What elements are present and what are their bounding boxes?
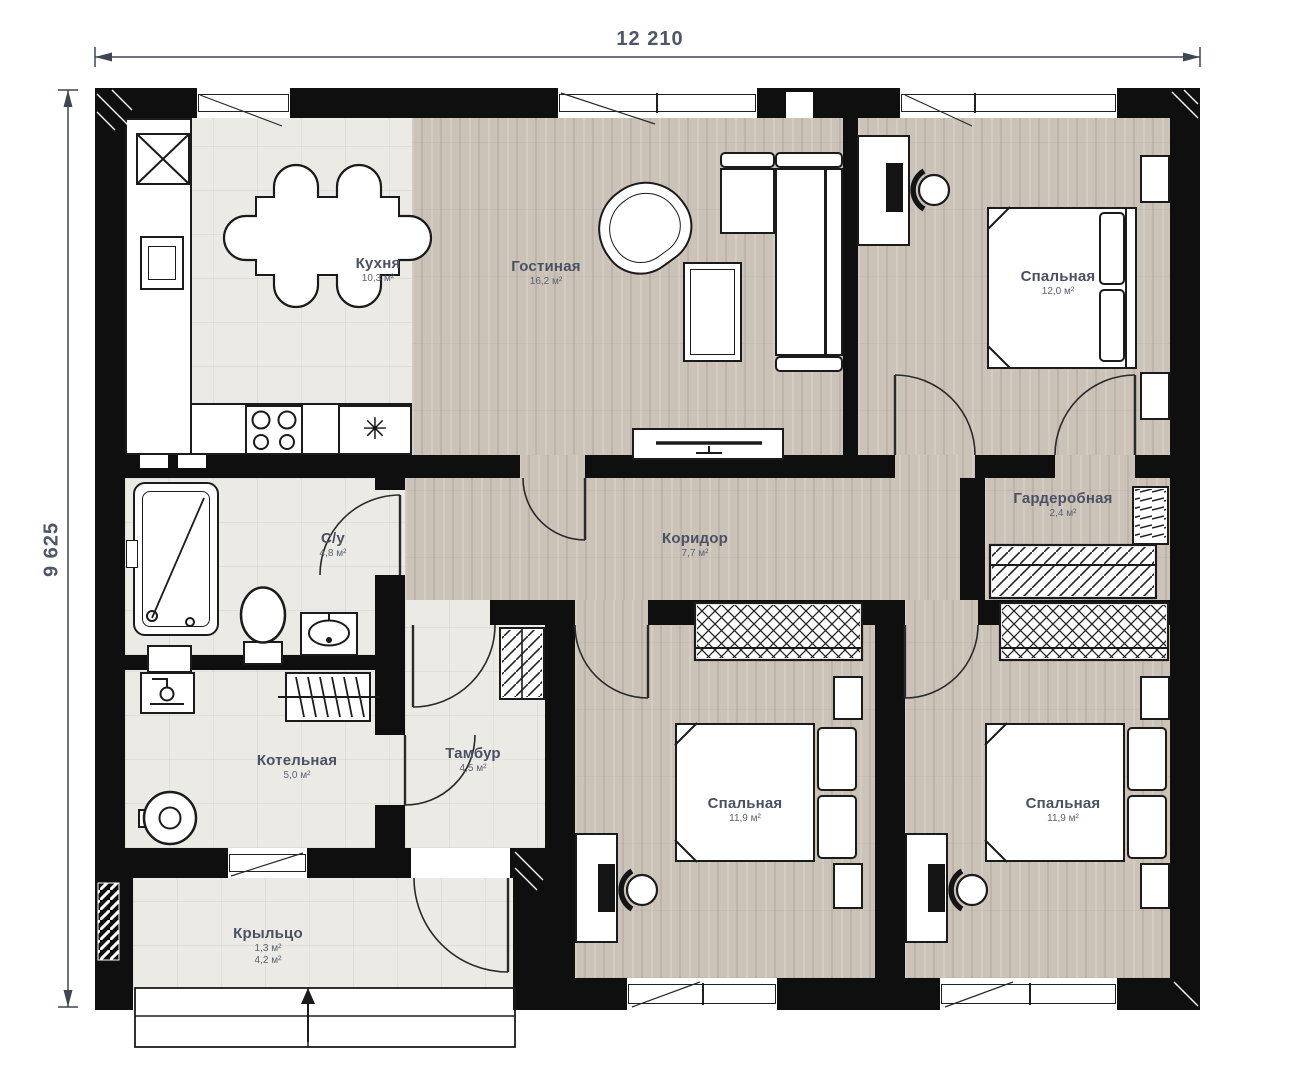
nightstand	[1140, 155, 1170, 203]
bathroom-label: С/у 4,8 м²	[320, 530, 347, 560]
room-name: Гостиная	[511, 258, 580, 276]
bed-bm-mattress	[675, 723, 815, 862]
porch-label: Крыльцо 1,3 м² 4,2 м²	[233, 925, 303, 967]
bed-br-pillow	[1127, 727, 1167, 791]
bedroom-tr-label: Спальная 12,0 м²	[1021, 268, 1096, 298]
wall-vent-notch	[786, 92, 813, 118]
room-name: С/у	[320, 530, 347, 548]
vestibule-floor	[405, 600, 545, 848]
bath-faucet	[126, 540, 138, 568]
window-frame	[198, 94, 289, 112]
sofa-armrest-bottom	[775, 356, 843, 372]
living-window	[558, 88, 757, 118]
window-mullion	[702, 983, 704, 1005]
boiler-label: Котельная 5,0 м²	[257, 752, 337, 782]
monitor-bm	[598, 864, 615, 912]
bathroom-sink	[300, 612, 358, 656]
bed-tr-pillow	[1099, 289, 1125, 362]
window-frame	[901, 94, 1116, 112]
room-area: 7,7 м²	[662, 548, 728, 560]
room-area: 11,9 м²	[1026, 813, 1101, 825]
bedroom-tr-window	[900, 88, 1117, 118]
bed-br-mattress	[985, 723, 1125, 862]
window-mullion	[974, 93, 976, 113]
tv-stand	[632, 428, 784, 460]
nightstand	[833, 676, 863, 720]
window-mullion	[656, 93, 658, 113]
room-name: Спальная	[708, 795, 783, 813]
wall-corridor-wardrobe	[960, 478, 985, 600]
entrance-opening	[411, 848, 510, 878]
wall-vestibule-east	[545, 600, 575, 978]
bathtub-basin	[142, 491, 210, 627]
coffee-table-top	[690, 269, 735, 355]
porch-floor	[133, 878, 513, 990]
sink-basin	[148, 246, 176, 280]
wall-porch-right	[513, 878, 545, 1010]
room-name: Кухня	[356, 255, 401, 273]
window-frame	[229, 854, 306, 872]
room-area: 11,9 м²	[708, 813, 783, 825]
nightstand	[1140, 863, 1170, 909]
sofa-back	[825, 168, 843, 356]
bedroom-bm-label: Спальная 11,9 м²	[708, 795, 783, 825]
bed-tr-headboard	[1125, 207, 1137, 369]
wall-notch	[178, 455, 206, 468]
wall-left	[95, 118, 125, 848]
room-name: Спальная	[1026, 795, 1101, 813]
kitchen-label: Кухня 10,3 м²	[356, 255, 401, 285]
bedroom-br-window	[940, 978, 1117, 1010]
bathtub	[133, 482, 219, 636]
wall-notch	[140, 455, 168, 468]
bedroom-br-label: Спальная 11,9 м²	[1026, 795, 1101, 825]
room-name: Коридор	[662, 530, 728, 548]
fridge	[136, 133, 190, 185]
nightstand	[1140, 676, 1170, 720]
boiler-window	[228, 848, 307, 878]
room-area: 16,2 м²	[511, 276, 580, 288]
room-area: 10,3 м²	[356, 273, 401, 285]
wall-seg	[375, 455, 405, 490]
monitor-br	[928, 864, 945, 912]
sofa-chaise-seat	[720, 168, 775, 234]
dimension-width-label: 12 210	[616, 28, 683, 51]
stove	[245, 405, 303, 455]
corridor-label: Коридор 7,7 м²	[662, 530, 728, 560]
room-area: 4,2 м²	[233, 955, 303, 967]
wall-seg	[975, 455, 1055, 478]
monitor-tr	[886, 163, 903, 212]
room-area: 12,0 м²	[1021, 286, 1096, 298]
nightstand	[1140, 372, 1170, 420]
sofa-chaise-back	[720, 152, 775, 168]
wall-bedrooms-divide	[875, 625, 905, 978]
coffee-table	[683, 262, 742, 362]
bed-br-pillow	[1127, 795, 1167, 859]
sofa-armrest-top	[775, 152, 843, 168]
room-area: 4,5 м²	[445, 763, 501, 775]
sofa-seat	[775, 168, 826, 356]
wall-living-bedroom	[843, 118, 858, 455]
bedroom-bm-window	[627, 978, 777, 1010]
wall-seg	[375, 805, 405, 878]
bed-bm-pillow	[817, 795, 857, 859]
room-area: 5,0 м²	[257, 770, 337, 782]
wardrobe-label: Гардеробная 2,4 м²	[1013, 490, 1112, 520]
utility-box	[147, 645, 192, 673]
wall-seg	[648, 600, 905, 625]
room-area: 1,3 м²	[233, 943, 303, 955]
room-name: Котельная	[257, 752, 337, 770]
water-heater	[140, 672, 195, 714]
kitchen-window	[197, 88, 290, 118]
room-area: 2,4 м²	[1013, 508, 1112, 520]
room-name: Крыльцо	[233, 925, 303, 943]
wall-seg	[978, 600, 1170, 625]
window-mullion	[1029, 983, 1031, 1005]
kitchen-sink	[140, 236, 184, 290]
washer-glyph-icon: ✳	[362, 415, 387, 445]
window-frame	[559, 94, 756, 112]
porch-steps-area	[135, 988, 515, 1047]
wall-right	[1170, 118, 1200, 1010]
radiator	[285, 672, 371, 722]
floor-plan: ✳	[0, 0, 1304, 1080]
room-name: Спальная	[1021, 268, 1096, 286]
toilet-tank	[243, 641, 283, 665]
room-name: Тамбур	[445, 745, 501, 763]
washing-machine: ✳	[338, 405, 412, 455]
vestibule-label: Тамбур 4,5 м²	[445, 745, 501, 775]
wall-seg	[1135, 455, 1170, 478]
living-label: Гостиная 16,2 м²	[511, 258, 580, 288]
bed-bm-pillow	[817, 727, 857, 791]
bed-tr-pillow	[1099, 212, 1125, 285]
wall-seg	[375, 575, 405, 735]
room-name: Гардеробная	[1013, 490, 1112, 508]
room-area: 4,8 м²	[320, 548, 347, 560]
dimension-height-label: 9 625	[41, 510, 64, 590]
nightstand	[833, 863, 863, 909]
